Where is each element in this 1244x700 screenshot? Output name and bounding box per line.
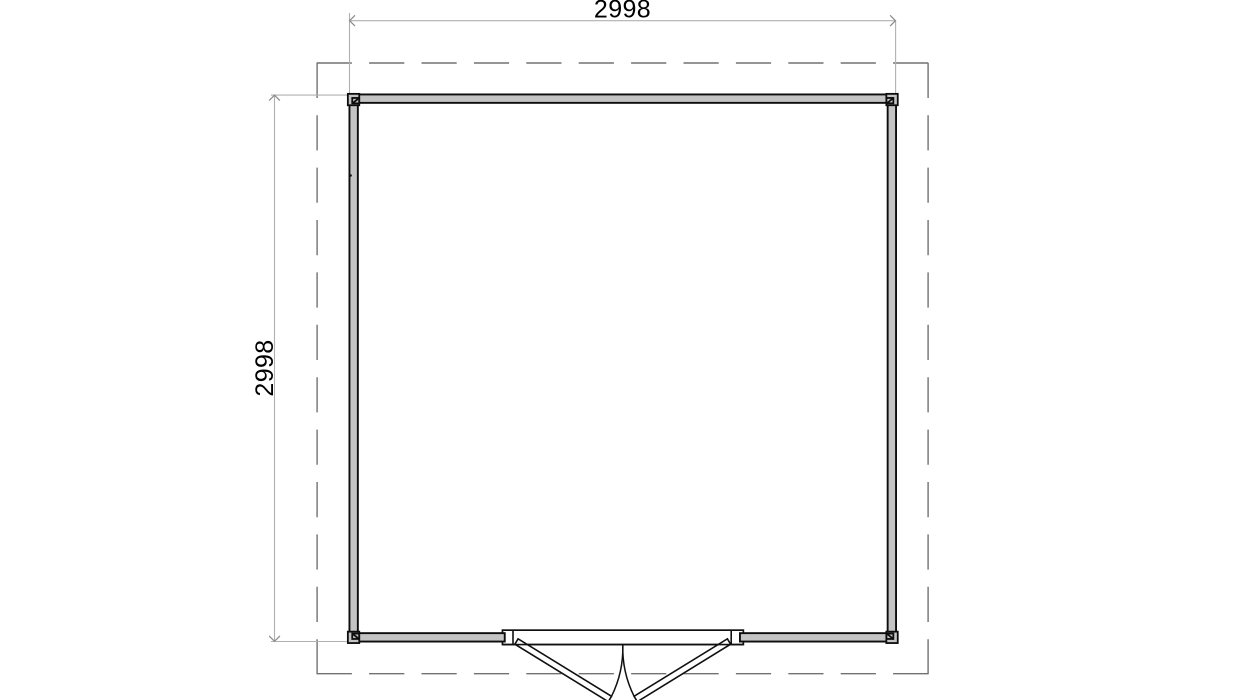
svg-text:2998: 2998: [251, 339, 279, 396]
svg-text:2998: 2998: [594, 0, 651, 24]
